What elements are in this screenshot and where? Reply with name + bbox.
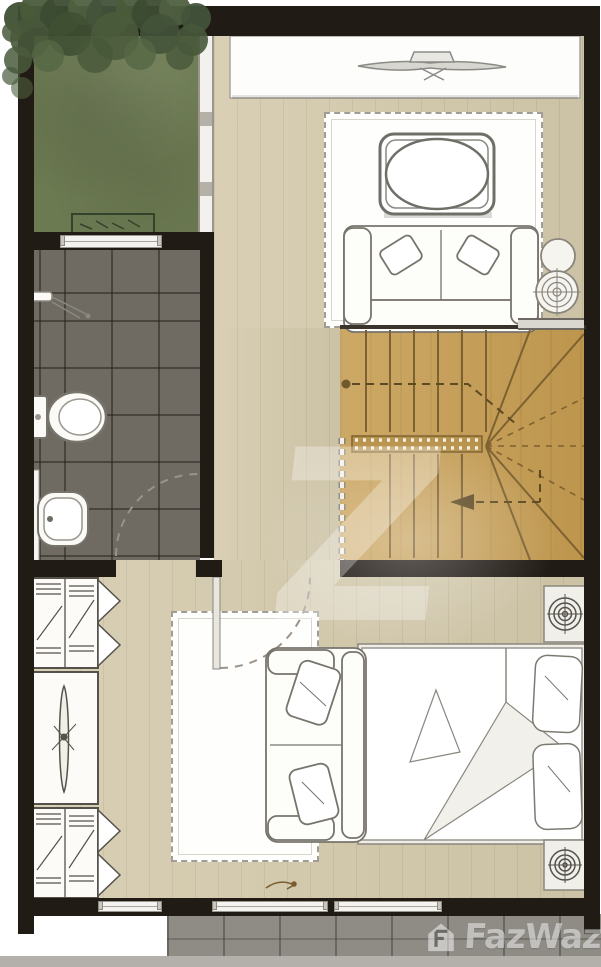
fazwaz-watermark: FazWaz xyxy=(424,912,601,962)
floor-plan: Z FazWaz xyxy=(0,0,601,967)
brand-name: FazWaz xyxy=(463,917,601,957)
house-icon xyxy=(424,915,458,959)
garden-trees xyxy=(2,0,211,99)
watermark-letter: Z xyxy=(204,414,511,674)
